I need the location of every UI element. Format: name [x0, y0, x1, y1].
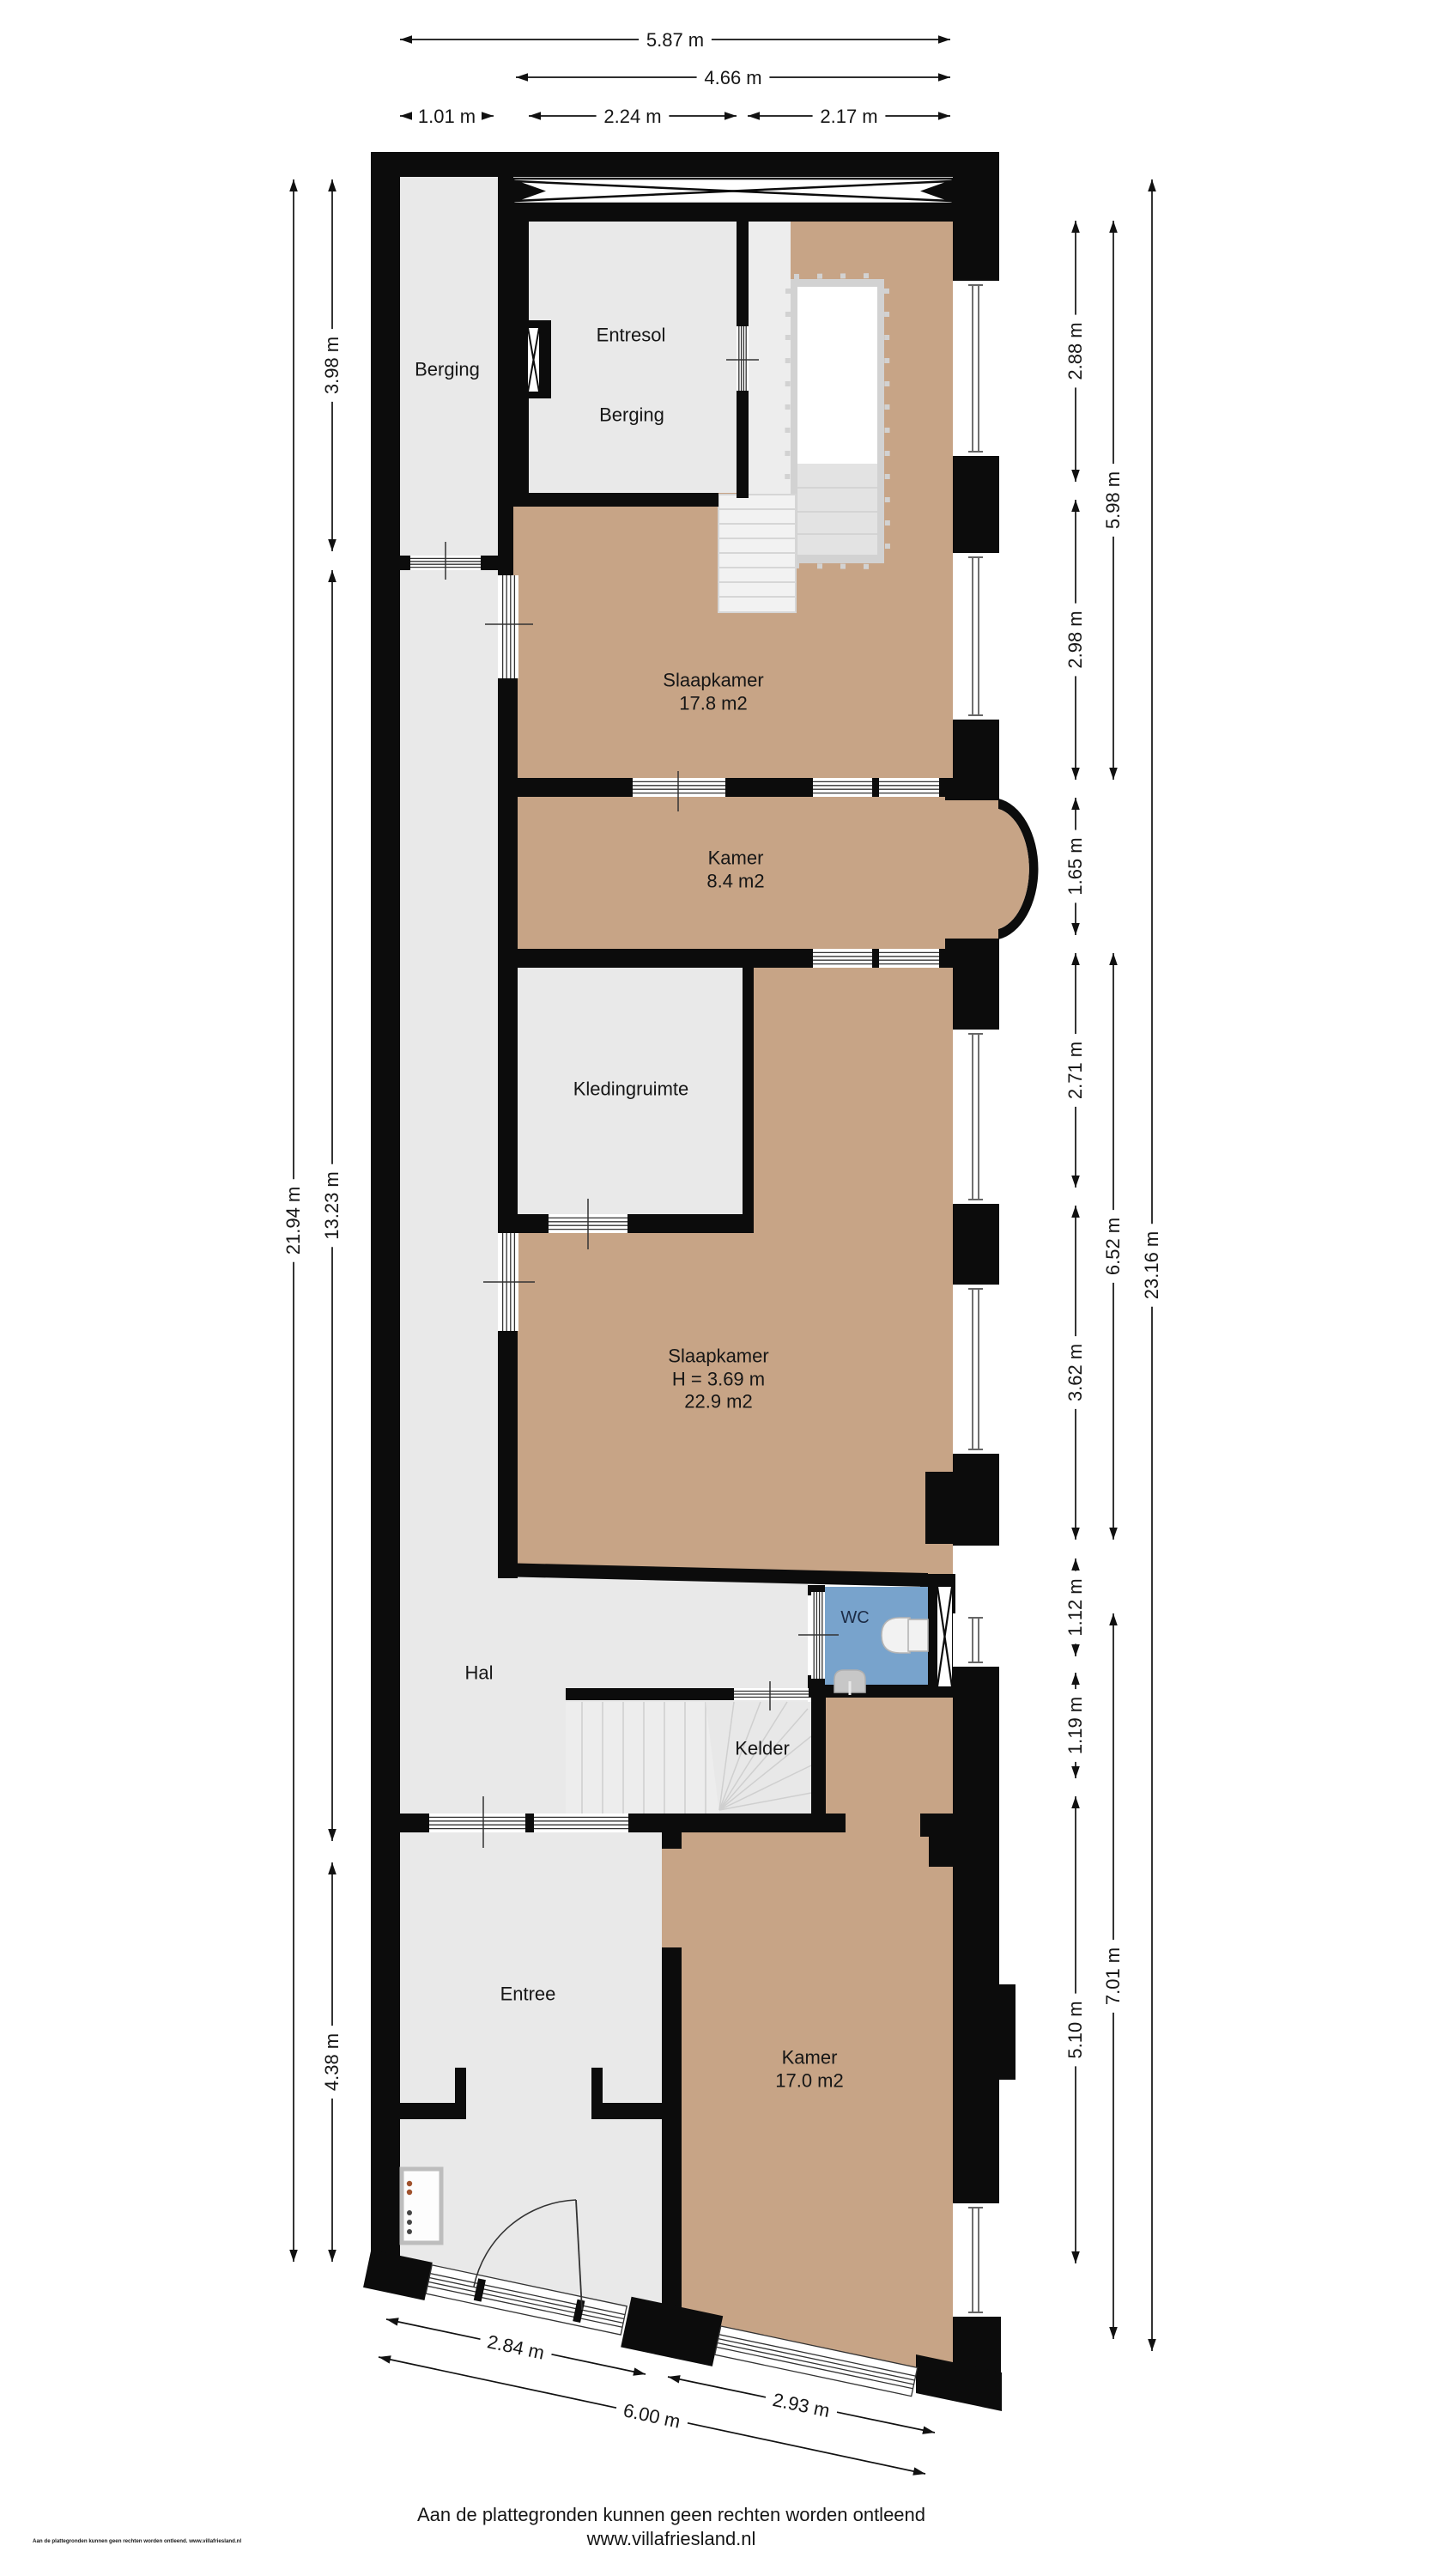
svg-text:Kledingruimte: Kledingruimte [573, 1078, 689, 1100]
svg-text:13.23 m: 13.23 m [321, 1171, 343, 1240]
svg-text:4.38 m: 4.38 m [321, 2033, 343, 2091]
svg-text:Entree: Entree [500, 1984, 556, 2005]
svg-text:2.17 m: 2.17 m [820, 106, 877, 127]
svg-text:5.98 m: 5.98 m [1102, 471, 1124, 529]
svg-text:2.88 m: 2.88 m [1064, 322, 1086, 380]
svg-text:1.12 m: 1.12 m [1064, 1578, 1086, 1636]
svg-text:22.9 m2: 22.9 m2 [684, 1391, 753, 1413]
svg-text:23.16 m: 23.16 m [1141, 1231, 1162, 1300]
svg-text:1.01 m: 1.01 m [418, 106, 476, 127]
svg-text:Aan de plattegronden kunnen ge: Aan de plattegronden kunnen geen rechten… [417, 2504, 925, 2525]
svg-text:4.66 m: 4.66 m [704, 67, 761, 88]
svg-text:H = 3.69 m: H = 3.69 m [672, 1369, 765, 1390]
svg-text:1.19 m: 1.19 m [1064, 1697, 1086, 1754]
svg-text:5.10 m: 5.10 m [1064, 2001, 1086, 2058]
svg-text:3.62 m: 3.62 m [1064, 1344, 1086, 1401]
svg-text:17.8 m2: 17.8 m2 [679, 693, 748, 714]
svg-text:2.71 m: 2.71 m [1064, 1042, 1086, 1099]
svg-text:WC: WC [840, 1608, 869, 1627]
svg-text:6.52 m: 6.52 m [1102, 1218, 1124, 1275]
svg-text:3.98 m: 3.98 m [321, 337, 343, 394]
svg-text:Berging: Berging [599, 404, 664, 426]
svg-text:5.87 m: 5.87 m [646, 29, 704, 51]
svg-text:1.65 m: 1.65 m [1064, 837, 1086, 895]
svg-text:21.94 m: 21.94 m [282, 1187, 304, 1255]
svg-text:Hal: Hal [464, 1662, 493, 1684]
svg-text:7.01 m: 7.01 m [1102, 1947, 1124, 2005]
svg-text:17.0 m2: 17.0 m2 [775, 2070, 844, 2092]
svg-text:2.24 m: 2.24 m [603, 106, 661, 127]
svg-text:Aan de plattegronden kunnen ge: Aan de plattegronden kunnen geen rechten… [33, 2538, 241, 2544]
svg-text:Slaapkamer: Slaapkamer [668, 1346, 768, 1367]
svg-text:8.4 m2: 8.4 m2 [706, 871, 764, 892]
svg-text:Berging: Berging [415, 359, 480, 380]
svg-text:Kamer: Kamer [708, 848, 764, 869]
svg-text:Slaapkamer: Slaapkamer [663, 670, 763, 691]
svg-text:2.98 m: 2.98 m [1064, 611, 1086, 668]
svg-text:Kelder: Kelder [735, 1738, 790, 1759]
svg-text:Entresol: Entresol [597, 325, 666, 346]
svg-text:www.villafriesland.nl: www.villafriesland.nl [586, 2528, 756, 2549]
svg-text:Kamer: Kamer [782, 2047, 838, 2069]
